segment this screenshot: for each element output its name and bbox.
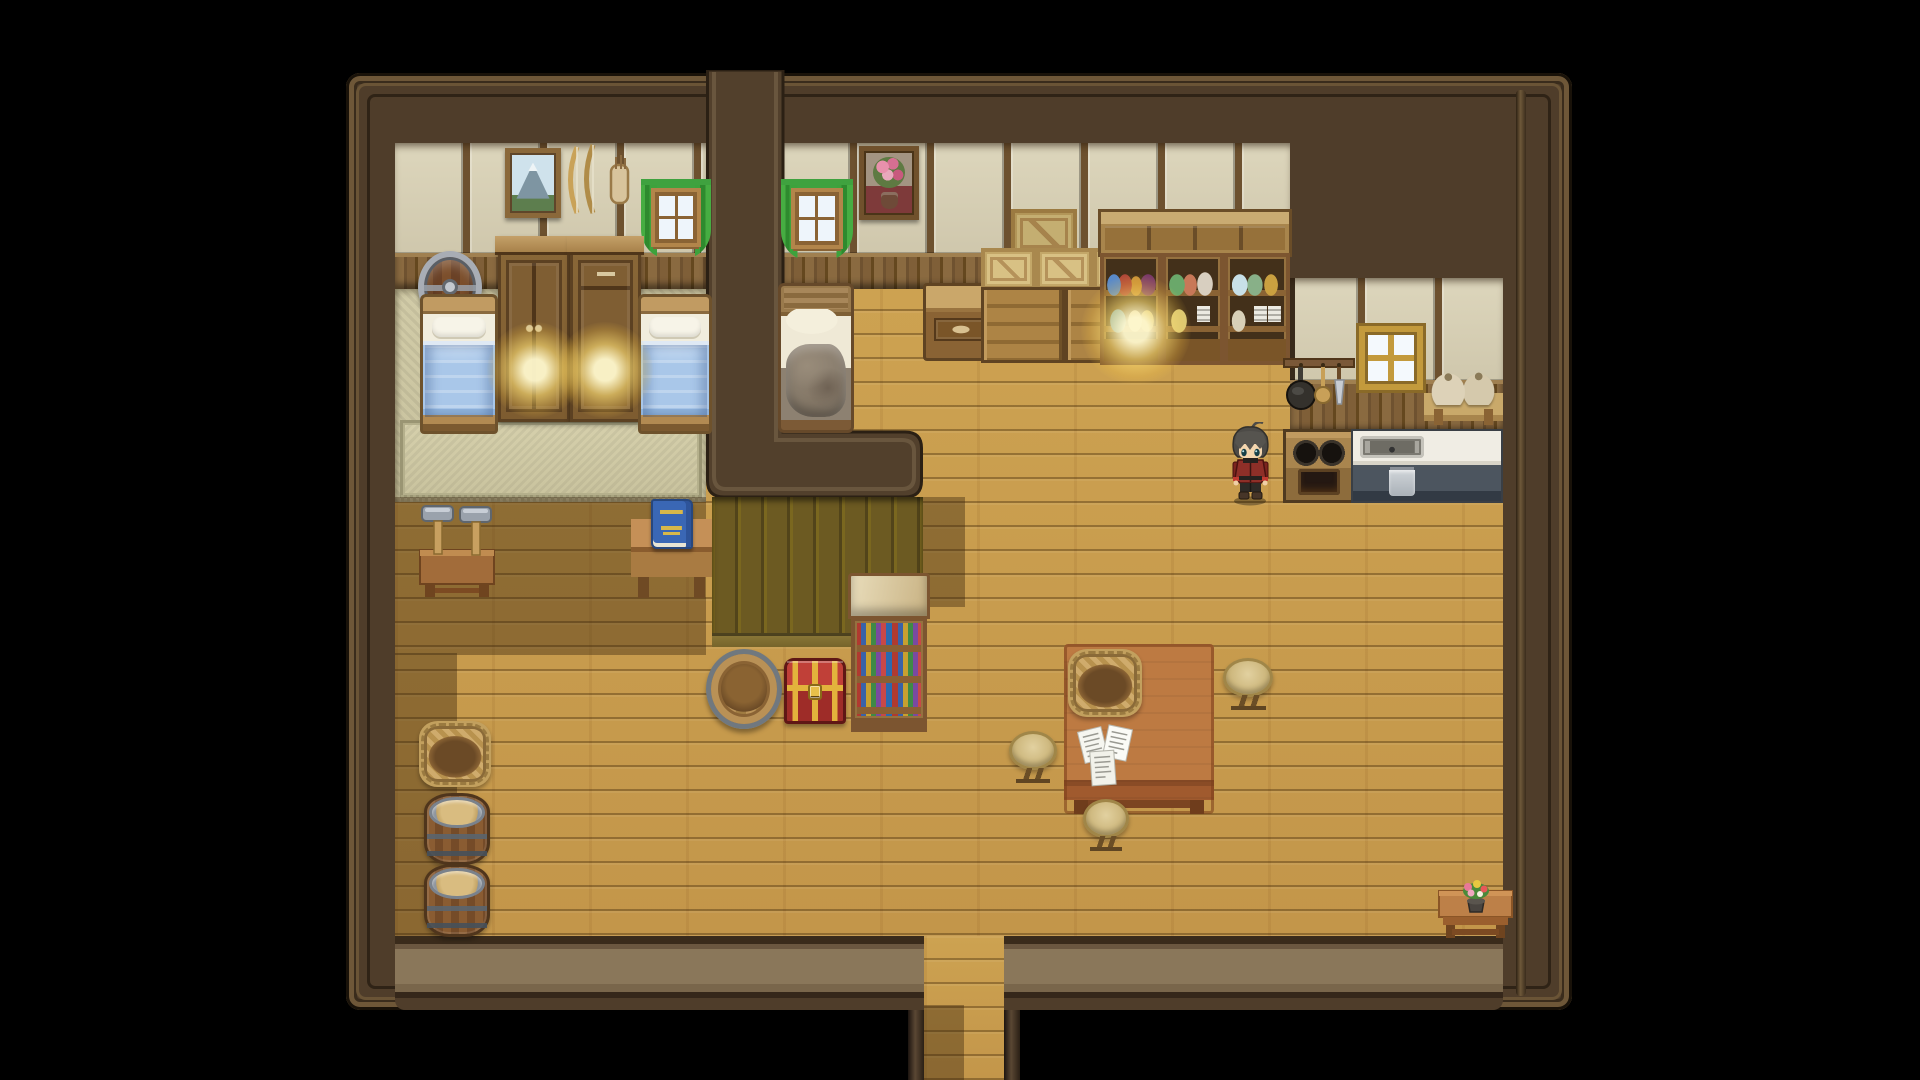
dresser-wide-1 bbox=[981, 287, 1065, 363]
crate-1 bbox=[981, 248, 1036, 290]
flower-table bbox=[1437, 863, 1514, 941]
player-character-sprite bbox=[1226, 422, 1275, 506]
book-desk[interactable] bbox=[631, 499, 712, 598]
stove[interactable] bbox=[1283, 429, 1355, 503]
lamp-glow-shelf bbox=[1081, 275, 1191, 385]
papers[interactable] bbox=[1073, 723, 1135, 789]
game-viewport[interactable] bbox=[0, 0, 1920, 1080]
bow-and-quiver-graphic bbox=[563, 141, 639, 225]
corridor-wall-left bbox=[908, 1010, 924, 1080]
stool-bottom bbox=[1083, 799, 1129, 851]
painting-mountain bbox=[505, 148, 561, 218]
player-character[interactable] bbox=[1226, 422, 1275, 506]
pan-rack bbox=[1283, 354, 1355, 426]
shadow-corridor bbox=[924, 1005, 964, 1080]
hutch-plates bbox=[1224, 253, 1290, 365]
lamp-glow-right bbox=[557, 322, 653, 418]
crate-2 bbox=[1036, 248, 1093, 290]
sink-counter[interactable] bbox=[1351, 429, 1503, 503]
stool-right bbox=[1223, 658, 1273, 710]
hanging-pans-graphic bbox=[1283, 354, 1355, 426]
sack-shelf bbox=[1424, 371, 1503, 425]
bed-messy bbox=[778, 283, 854, 433]
basket-floor bbox=[419, 721, 491, 787]
stool-left bbox=[1009, 731, 1057, 783]
hammer-stand bbox=[418, 498, 496, 600]
upper-cabinet bbox=[1098, 209, 1292, 257]
painting-flowers bbox=[859, 146, 919, 220]
hammers-on-stand-graphic bbox=[418, 498, 496, 600]
washtub bbox=[706, 649, 782, 729]
right-wall-ridge bbox=[1516, 90, 1526, 996]
treasure-chest[interactable] bbox=[784, 658, 846, 724]
bookshelf[interactable] bbox=[851, 573, 927, 732]
window-bedroom-left bbox=[641, 179, 711, 259]
scattered-papers-graphic bbox=[1073, 723, 1135, 789]
barrel-2 bbox=[424, 864, 490, 937]
barrel-1 bbox=[424, 793, 490, 865]
flower-pot-table-graphic bbox=[1437, 863, 1514, 941]
bow-rack bbox=[563, 141, 639, 225]
window-bedroom-mid bbox=[781, 179, 853, 261]
basket-on-table bbox=[1068, 649, 1142, 717]
window-kitchen bbox=[1359, 326, 1423, 390]
corridor-wall-right bbox=[1004, 1010, 1020, 1080]
